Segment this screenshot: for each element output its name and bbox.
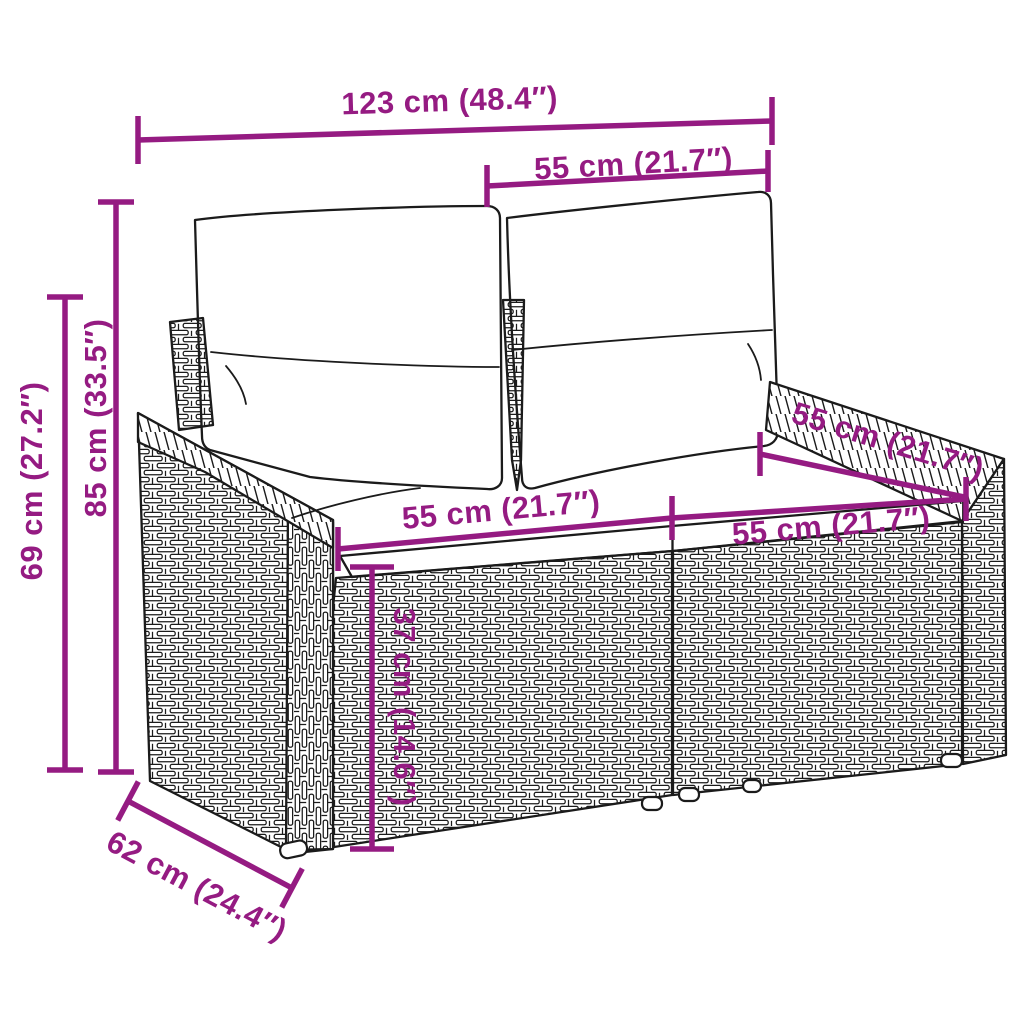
foot xyxy=(941,754,962,767)
label-overall-width: 123 cm (48.4″) xyxy=(341,80,559,122)
foot xyxy=(642,797,662,810)
left-front-corner-post xyxy=(286,498,333,850)
bench-dimension-drawing: 123 cm (48.4″) 55 cm (21.7″) 85 cm (33.5… xyxy=(0,0,1024,1024)
product-dimension-diagram: 123 cm (48.4″) 55 cm (21.7″) 85 cm (33.5… xyxy=(0,0,1024,1024)
label-overall-height: 85 cm (33.5″) xyxy=(78,319,113,518)
front-panel-right-seat xyxy=(673,522,962,795)
foot xyxy=(679,788,699,801)
label-seat-height: 37 cm (14.6″) xyxy=(387,608,422,807)
label-armrest-height: 69 cm (27.2″) xyxy=(14,382,49,581)
foot xyxy=(743,780,761,792)
